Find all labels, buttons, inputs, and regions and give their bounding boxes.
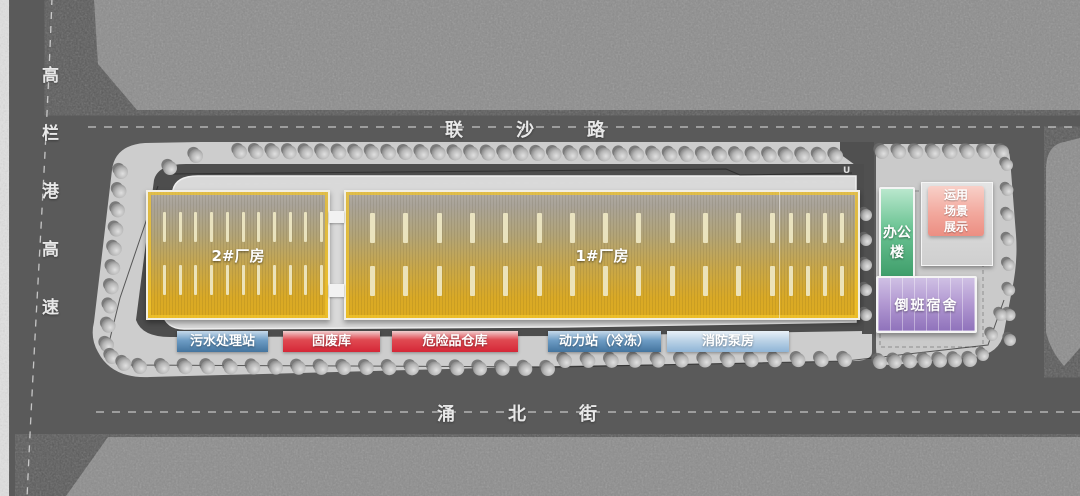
building-dormitory: 倒班宿舍 bbox=[876, 276, 977, 333]
office-label: 办公楼 bbox=[882, 223, 913, 264]
road-name-liansha-road: 联沙路 bbox=[445, 116, 658, 142]
corridor-top bbox=[329, 211, 344, 223]
facility-label-sewage-station: 污水处理站 bbox=[177, 331, 268, 352]
city-block-bottom bbox=[66, 437, 1080, 496]
road-u-turn-marking: U bbox=[843, 166, 850, 176]
factory-1-label: 1#厂房 bbox=[575, 245, 628, 266]
corridor-bottom bbox=[329, 284, 344, 297]
facility-label-power-station: 动力站（冷冻） bbox=[548, 331, 661, 352]
city-block-top bbox=[94, 0, 1080, 110]
facility-label-solid-waste: 固废库 bbox=[283, 331, 380, 352]
factory-1-section-divider bbox=[779, 192, 780, 318]
road-name-gaolangang-expressway: 高栏港高速 bbox=[36, 66, 61, 356]
scene-display-label: 运用场景展示 bbox=[928, 186, 984, 236]
building-office: 办公楼 bbox=[879, 187, 915, 278]
factory-2-label: 2#厂房 bbox=[211, 245, 264, 266]
road-name-yongbei-street: 涌北街 bbox=[437, 400, 650, 426]
left-edge-strip bbox=[0, 0, 9, 496]
facility-label-fire-pump: 消防泵房 bbox=[667, 331, 789, 352]
building-factory-1: 1#厂房 bbox=[344, 190, 860, 320]
building-factory-2: 2#厂房 bbox=[146, 190, 330, 320]
city-block-right bbox=[1046, 138, 1080, 366]
site-plan-map: 2#厂房 1#厂房 运用场景展示 办公楼 倒班宿舍 污水处理站 固废库 危险品仓… bbox=[0, 0, 1080, 496]
facility-label-hazardous-warehouse: 危险品仓库 bbox=[392, 331, 518, 352]
dormitory-label: 倒班宿舍 bbox=[895, 295, 959, 315]
